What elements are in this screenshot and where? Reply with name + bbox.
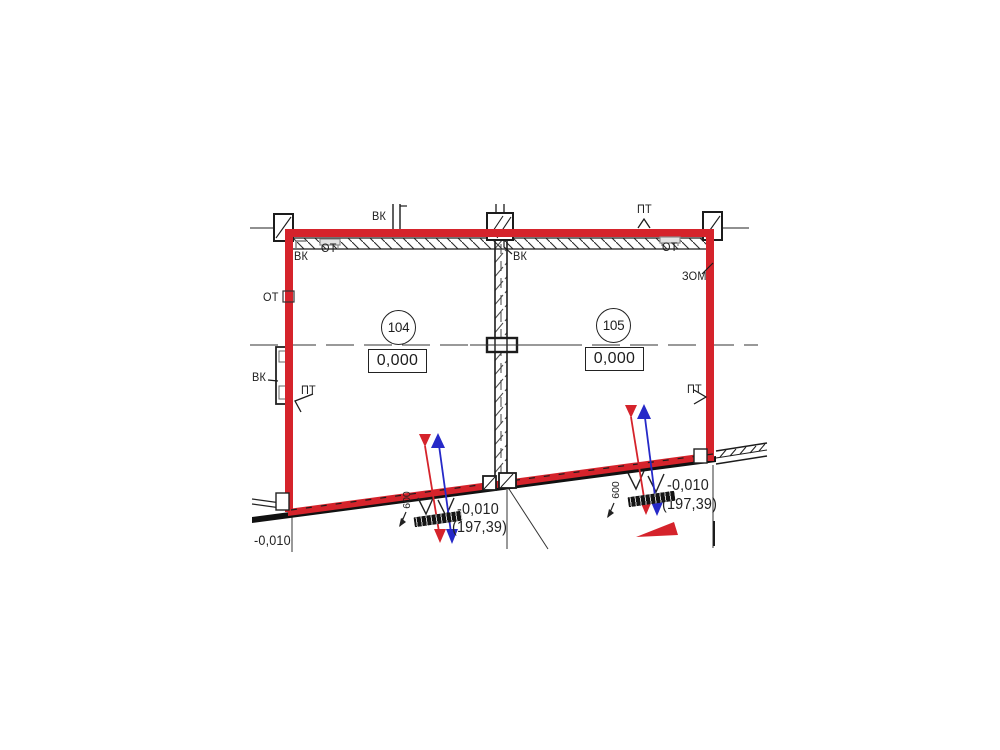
bottom-center-leaders — [507, 489, 548, 549]
label-pt-left: ПТ — [301, 385, 316, 397]
mark2-offset-dimension: 600 — [610, 472, 622, 508]
label-pt-top-right: ПТ — [637, 204, 652, 216]
label-ot-top-right: ОТ — [662, 242, 678, 254]
corner-box-bottom-right — [694, 449, 707, 463]
label-zom: ЗОМ — [682, 271, 707, 283]
vent-riser-stub — [393, 204, 407, 229]
floor-plan-sheet: ВК ОТ ВК ВК ПТ ОТ ЗОМ ОТ ВК ПТ ПТ 104 0,… — [0, 0, 1000, 750]
mark1-offset-dimension: 600 — [401, 482, 413, 518]
bottom-left-elevation: -0,010 — [254, 532, 291, 548]
room-elevation-105: 0,000 — [585, 347, 644, 371]
mark1-relative-elevation: -0,010 — [457, 501, 499, 519]
label-vk-corner-left: ВК — [294, 251, 308, 263]
room-elevation-104: 0,000 — [368, 349, 427, 373]
label-ot-top-left: ОТ — [321, 243, 337, 255]
label-vk-left: ВК — [252, 372, 266, 384]
label-vk-top: ВК — [372, 211, 386, 223]
pt-caret-top-right — [638, 219, 650, 228]
slope-triangle-icon — [636, 522, 678, 537]
label-vk-center: ВК — [513, 251, 527, 263]
plan-linework — [0, 0, 1000, 750]
label-pt-right: ПТ — [687, 384, 702, 396]
room-number-105: 105 — [596, 308, 631, 343]
right-wall-continuation — [716, 443, 767, 464]
label-ot-left: ОТ — [263, 292, 279, 304]
corner-box-bottom-left — [276, 493, 289, 510]
mark1-absolute-elevation: (197,39) — [452, 519, 507, 537]
room-number-104: 104 — [381, 310, 416, 345]
junction-boxes-bottom-center — [483, 473, 516, 490]
mid-axis-column — [470, 338, 560, 352]
